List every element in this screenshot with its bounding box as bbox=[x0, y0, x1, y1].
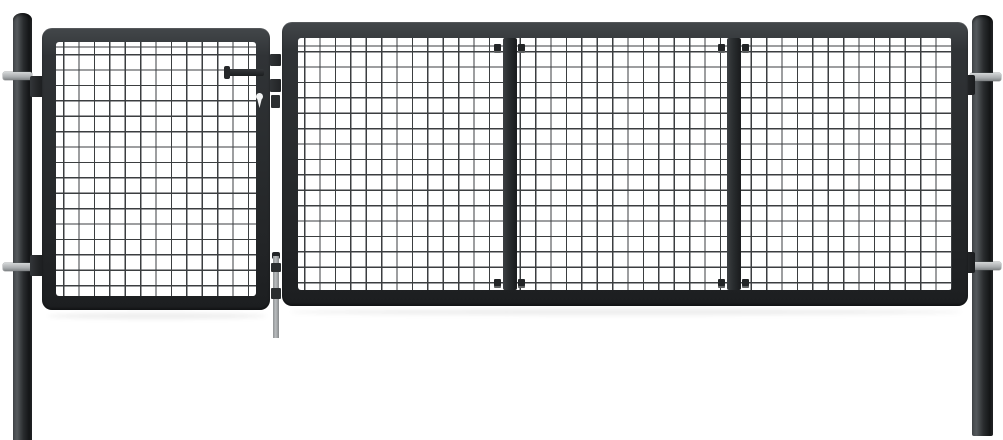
mesh-clip bbox=[718, 279, 725, 288]
gate-handle-end-cap bbox=[224, 66, 230, 79]
main-panel-mesh bbox=[298, 38, 952, 290]
mesh-clip bbox=[742, 279, 749, 288]
panel-stiffener-bar-2 bbox=[727, 38, 741, 290]
mesh-clip bbox=[494, 279, 501, 288]
left-post-upper-clamp-bolt bbox=[3, 72, 32, 80]
latch-tab-upper bbox=[270, 54, 281, 66]
door-ground-shadow bbox=[48, 313, 266, 319]
mesh-clip bbox=[518, 44, 525, 53]
main-panel-frame bbox=[282, 22, 968, 306]
panel-ground-shadow bbox=[290, 309, 962, 315]
drop-rod-guide-upper bbox=[271, 263, 281, 272]
panel-stiffener-bar-1 bbox=[503, 38, 517, 290]
gate-handle-bar bbox=[226, 69, 264, 76]
mesh-clip bbox=[494, 44, 501, 53]
left-post-lower-clamp-bolt bbox=[3, 263, 32, 271]
wicket-door-mesh bbox=[56, 42, 256, 296]
mesh-clip bbox=[518, 279, 525, 288]
drop-rod-guide-lower bbox=[271, 288, 281, 299]
latch-tab-middle bbox=[270, 79, 281, 92]
mesh-clip bbox=[742, 44, 749, 53]
mesh-clip bbox=[718, 44, 725, 53]
lock-striker-block bbox=[271, 95, 280, 108]
product-photo bbox=[0, 0, 1003, 440]
